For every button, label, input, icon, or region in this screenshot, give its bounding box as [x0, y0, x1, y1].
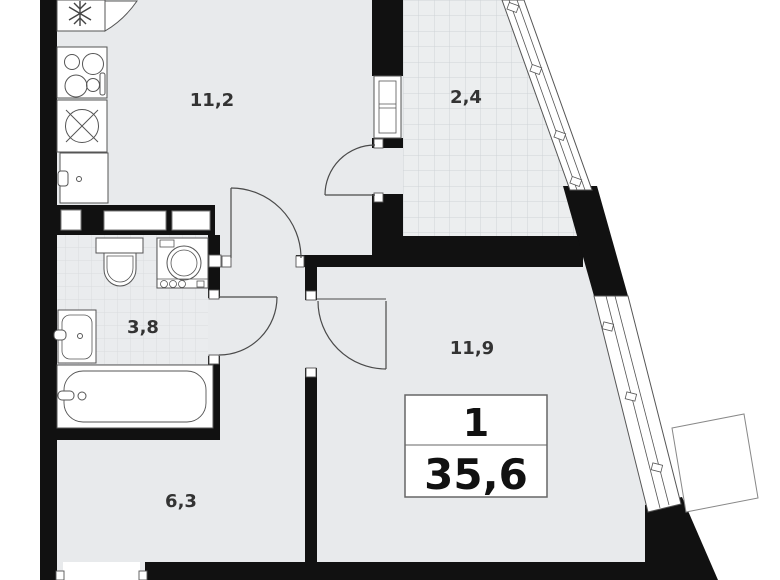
shaft-3: [172, 211, 210, 230]
jamb: [209, 255, 221, 267]
bathroom-sink: [54, 310, 96, 363]
wall-kitchen-door-side: [296, 255, 373, 267]
jamb: [374, 193, 383, 202]
wall-bathroom-bottom: [57, 428, 220, 440]
floor-plan-canvas: 11,2 2,4 3,8 11,9 6,3 1 35,6: [0, 0, 780, 580]
jamb: [56, 571, 64, 580]
shaft-2: [104, 211, 166, 230]
wall-balcony-living-separator: [403, 236, 583, 267]
room-label-hallway: 6,3: [165, 491, 197, 512]
jamb: [209, 355, 219, 364]
wall-left-outer: [40, 0, 57, 580]
jamb: [222, 256, 231, 267]
jamb: [209, 290, 219, 299]
room-label-kitchen: 11,2: [190, 90, 234, 111]
ac-basket: [672, 414, 758, 512]
jamb: [374, 139, 383, 148]
stove: [57, 47, 107, 98]
shaft-1: [61, 210, 81, 230]
kitchen-balcony-window: [374, 76, 401, 138]
info-rooms-count: 1: [463, 401, 489, 445]
bathtub: [57, 365, 213, 428]
jamb: [306, 368, 316, 377]
jamb: [139, 571, 147, 580]
wall-kitchen-balcony-top: [372, 0, 403, 76]
entrance-opening: [63, 562, 140, 580]
jamb: [306, 291, 316, 300]
wall-bottom-outer: [145, 562, 680, 580]
jamb: [296, 256, 304, 267]
room-label-balcony: 2,4: [450, 87, 482, 108]
kitchen-cabinet: [58, 153, 108, 203]
wall-living-left-lower: [305, 368, 317, 563]
info-box: 1 35,6: [405, 395, 547, 499]
wall-kitchen-balcony-bottom: [372, 194, 403, 267]
room-label-bathroom: 3,8: [127, 317, 159, 338]
floor-plan-svg: 11,2 2,4 3,8 11,9 6,3 1 35,6: [0, 0, 780, 580]
room-label-living-room: 11,9: [450, 338, 494, 359]
washing-machine: [157, 238, 208, 288]
kitchen-sink: [57, 100, 107, 152]
info-total-area: 35,6: [424, 450, 528, 499]
